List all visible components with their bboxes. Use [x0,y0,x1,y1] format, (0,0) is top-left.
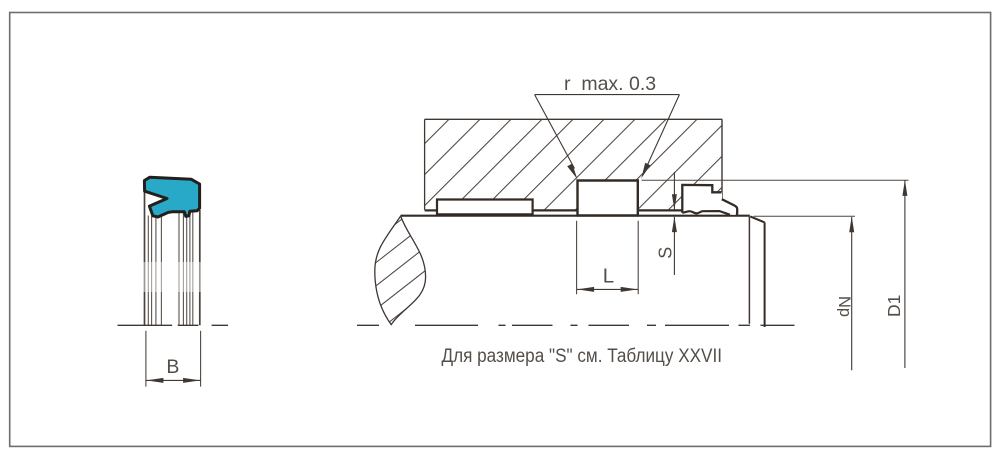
svg-text:S: S [656,247,676,259]
svg-text:Для размера "S" см. Таблицу XX: Для размера "S" см. Таблицу XXVII [442,346,723,367]
svg-text:dN: dN [835,296,855,317]
svg-text:B: B [166,356,179,378]
svg-text:L: L [603,264,614,287]
svg-text:D1: D1 [884,295,904,317]
svg-text:r max. 0.3: r max. 0.3 [564,73,656,95]
